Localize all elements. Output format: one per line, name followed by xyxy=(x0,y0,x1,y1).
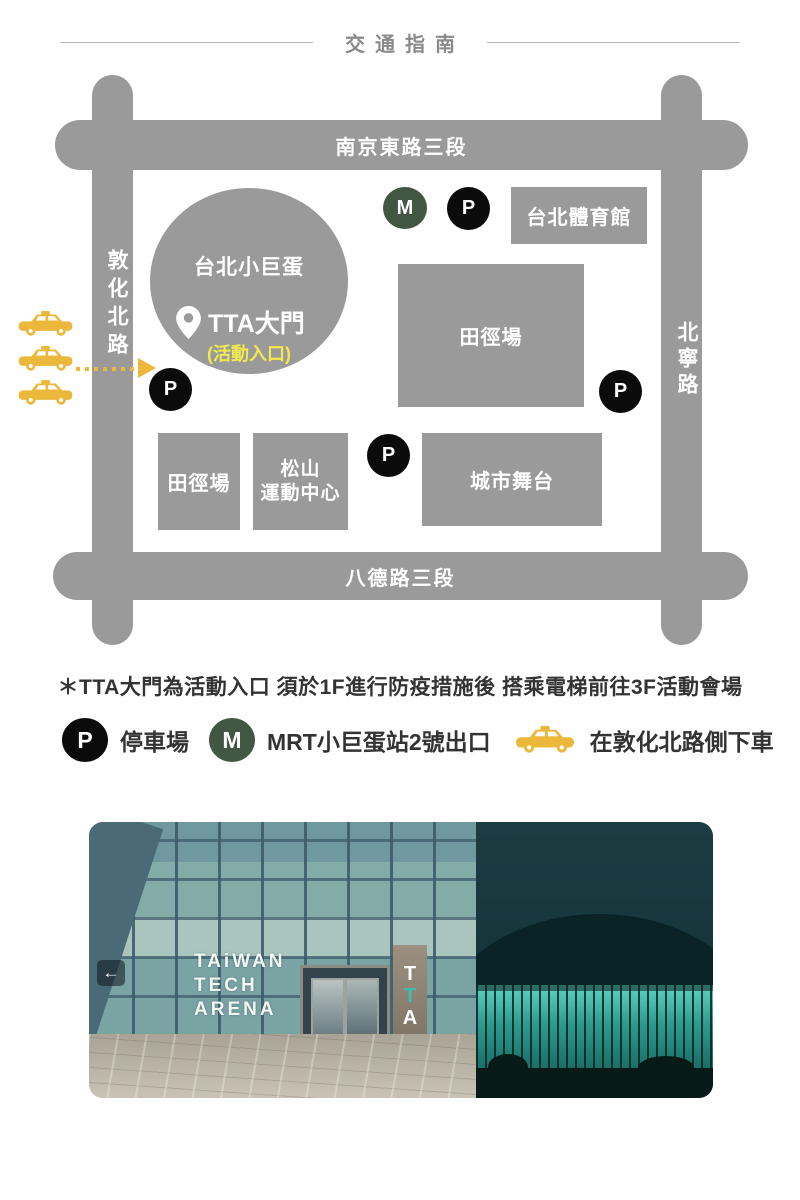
taipei-arena-circle: 台北小巨蛋 TTA大門 (活動入口) xyxy=(150,188,348,374)
taxi-icon xyxy=(17,380,74,406)
road-label-beining: 北寧路 xyxy=(671,321,701,399)
sign-line2: TECH xyxy=(194,974,286,998)
arena-night-photo xyxy=(476,822,713,1098)
parking-badge-center: P xyxy=(367,434,410,477)
pillar-letter: T xyxy=(404,986,416,1007)
road-bade: 八德路三段 xyxy=(53,552,748,600)
building-city-stage: 城市舞台 xyxy=(422,433,602,526)
pillar-letter: A xyxy=(403,1008,417,1029)
taxi-icon xyxy=(17,346,74,372)
tta-entrance-photo: TAiWAN TECH ARENA T T A ← xyxy=(89,822,476,1098)
parking-badge-right: P xyxy=(599,370,642,413)
building-songshan-sports-center: 松山 運動中心 xyxy=(253,433,348,530)
road-nanjing-east: 南京東路三段 xyxy=(55,120,748,170)
legend-metro-label: MRT小巨蛋站2號出口 xyxy=(267,723,491,757)
taxi-icon xyxy=(17,311,74,337)
songshan-line1: 松山 xyxy=(280,458,320,482)
legend-parking-badge: P xyxy=(62,718,108,762)
pillar-letter: T xyxy=(404,964,416,985)
taxi-dropoff-dotted-line xyxy=(76,367,138,371)
road-label-dunhua: 敦化北路 xyxy=(101,249,131,361)
legend-metro-badge: M xyxy=(209,718,255,762)
plaza-pavement xyxy=(89,1034,476,1098)
back-arrow-icon[interactable]: ← xyxy=(97,960,125,986)
road-label-nanjing: 南京東路三段 xyxy=(336,131,468,160)
building-track-field-large: 田徑場 xyxy=(398,264,584,407)
legend-taxi-label: 在敦化北路側下車 xyxy=(590,723,774,757)
legend-parking-label: 停車場 xyxy=(120,723,189,757)
taxi-dropoff-arrowhead xyxy=(138,358,156,378)
venue-photos: TAiWAN TECH ARENA T T A ← xyxy=(89,822,713,1098)
gate-entrance-note: (活動入口) xyxy=(150,340,348,366)
gate-label: TTA大門 xyxy=(208,304,305,340)
entrance-note: ＊TTA大門為活動入口 須於1F進行防疫措施後 搭乘電梯前往3F活動會場 xyxy=(0,671,800,701)
taiwan-tech-arena-sign: TAiWAN TECH ARENA xyxy=(194,950,286,1022)
road-label-bade: 八德路三段 xyxy=(346,562,456,591)
metro-badge: M xyxy=(383,187,427,229)
location-pin-icon xyxy=(176,306,201,339)
taxi-icon xyxy=(513,726,577,754)
arena-name: 台北小巨蛋 xyxy=(150,251,348,281)
map-legend: P 停車場 M MRT小巨蛋站2號出口 在敦化北路側下車 xyxy=(62,716,774,764)
tta-logo-pillar: T T A xyxy=(393,945,427,1048)
transport-guide-page: 交通指南 南京東路三段 八德路三段 敦化北路 北寧路 台北小巨蛋 TTA大門 (… xyxy=(0,0,800,1200)
tree-silhouettes xyxy=(476,1068,713,1098)
building-taipei-gymnasium: 台北體育館 xyxy=(511,187,647,244)
sign-line1: TAiWAN xyxy=(194,950,286,974)
sign-line3: ARENA xyxy=(194,998,286,1022)
building-track-field-small: 田徑場 xyxy=(158,433,240,530)
songshan-line2: 運動中心 xyxy=(260,482,340,506)
parking-badge-top: P xyxy=(447,187,490,230)
tta-gate: TTA大門 xyxy=(176,304,305,340)
